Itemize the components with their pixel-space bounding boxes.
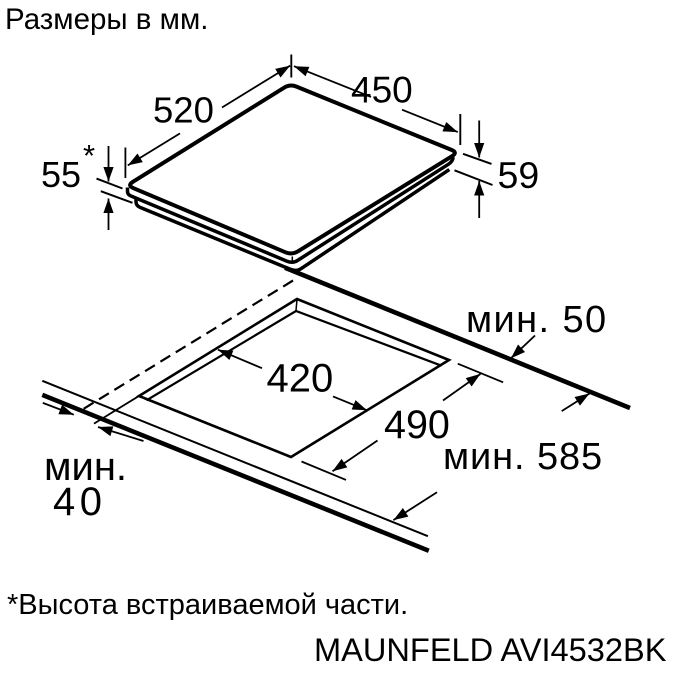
- svg-text:450: 450: [351, 70, 413, 111]
- svg-text:*Высота встраиваемой части.: *Высота встраиваемой части.: [7, 589, 408, 621]
- svg-text:Размеры в мм.: Размеры в мм.: [5, 3, 208, 36]
- svg-text:мин. 50: мин. 50: [466, 299, 608, 341]
- svg-text:40: 40: [53, 480, 107, 524]
- svg-text:420: 420: [267, 357, 334, 401]
- svg-text:MAUNFELD AVI4532BK: MAUNFELD AVI4532BK: [314, 631, 667, 668]
- svg-text:55: 55: [41, 154, 81, 195]
- svg-text:59: 59: [498, 154, 540, 196]
- svg-text:520: 520: [153, 90, 214, 131]
- svg-text:490: 490: [384, 403, 450, 447]
- svg-text:мин. 585: мин. 585: [443, 436, 603, 478]
- svg-text:*: *: [83, 138, 95, 173]
